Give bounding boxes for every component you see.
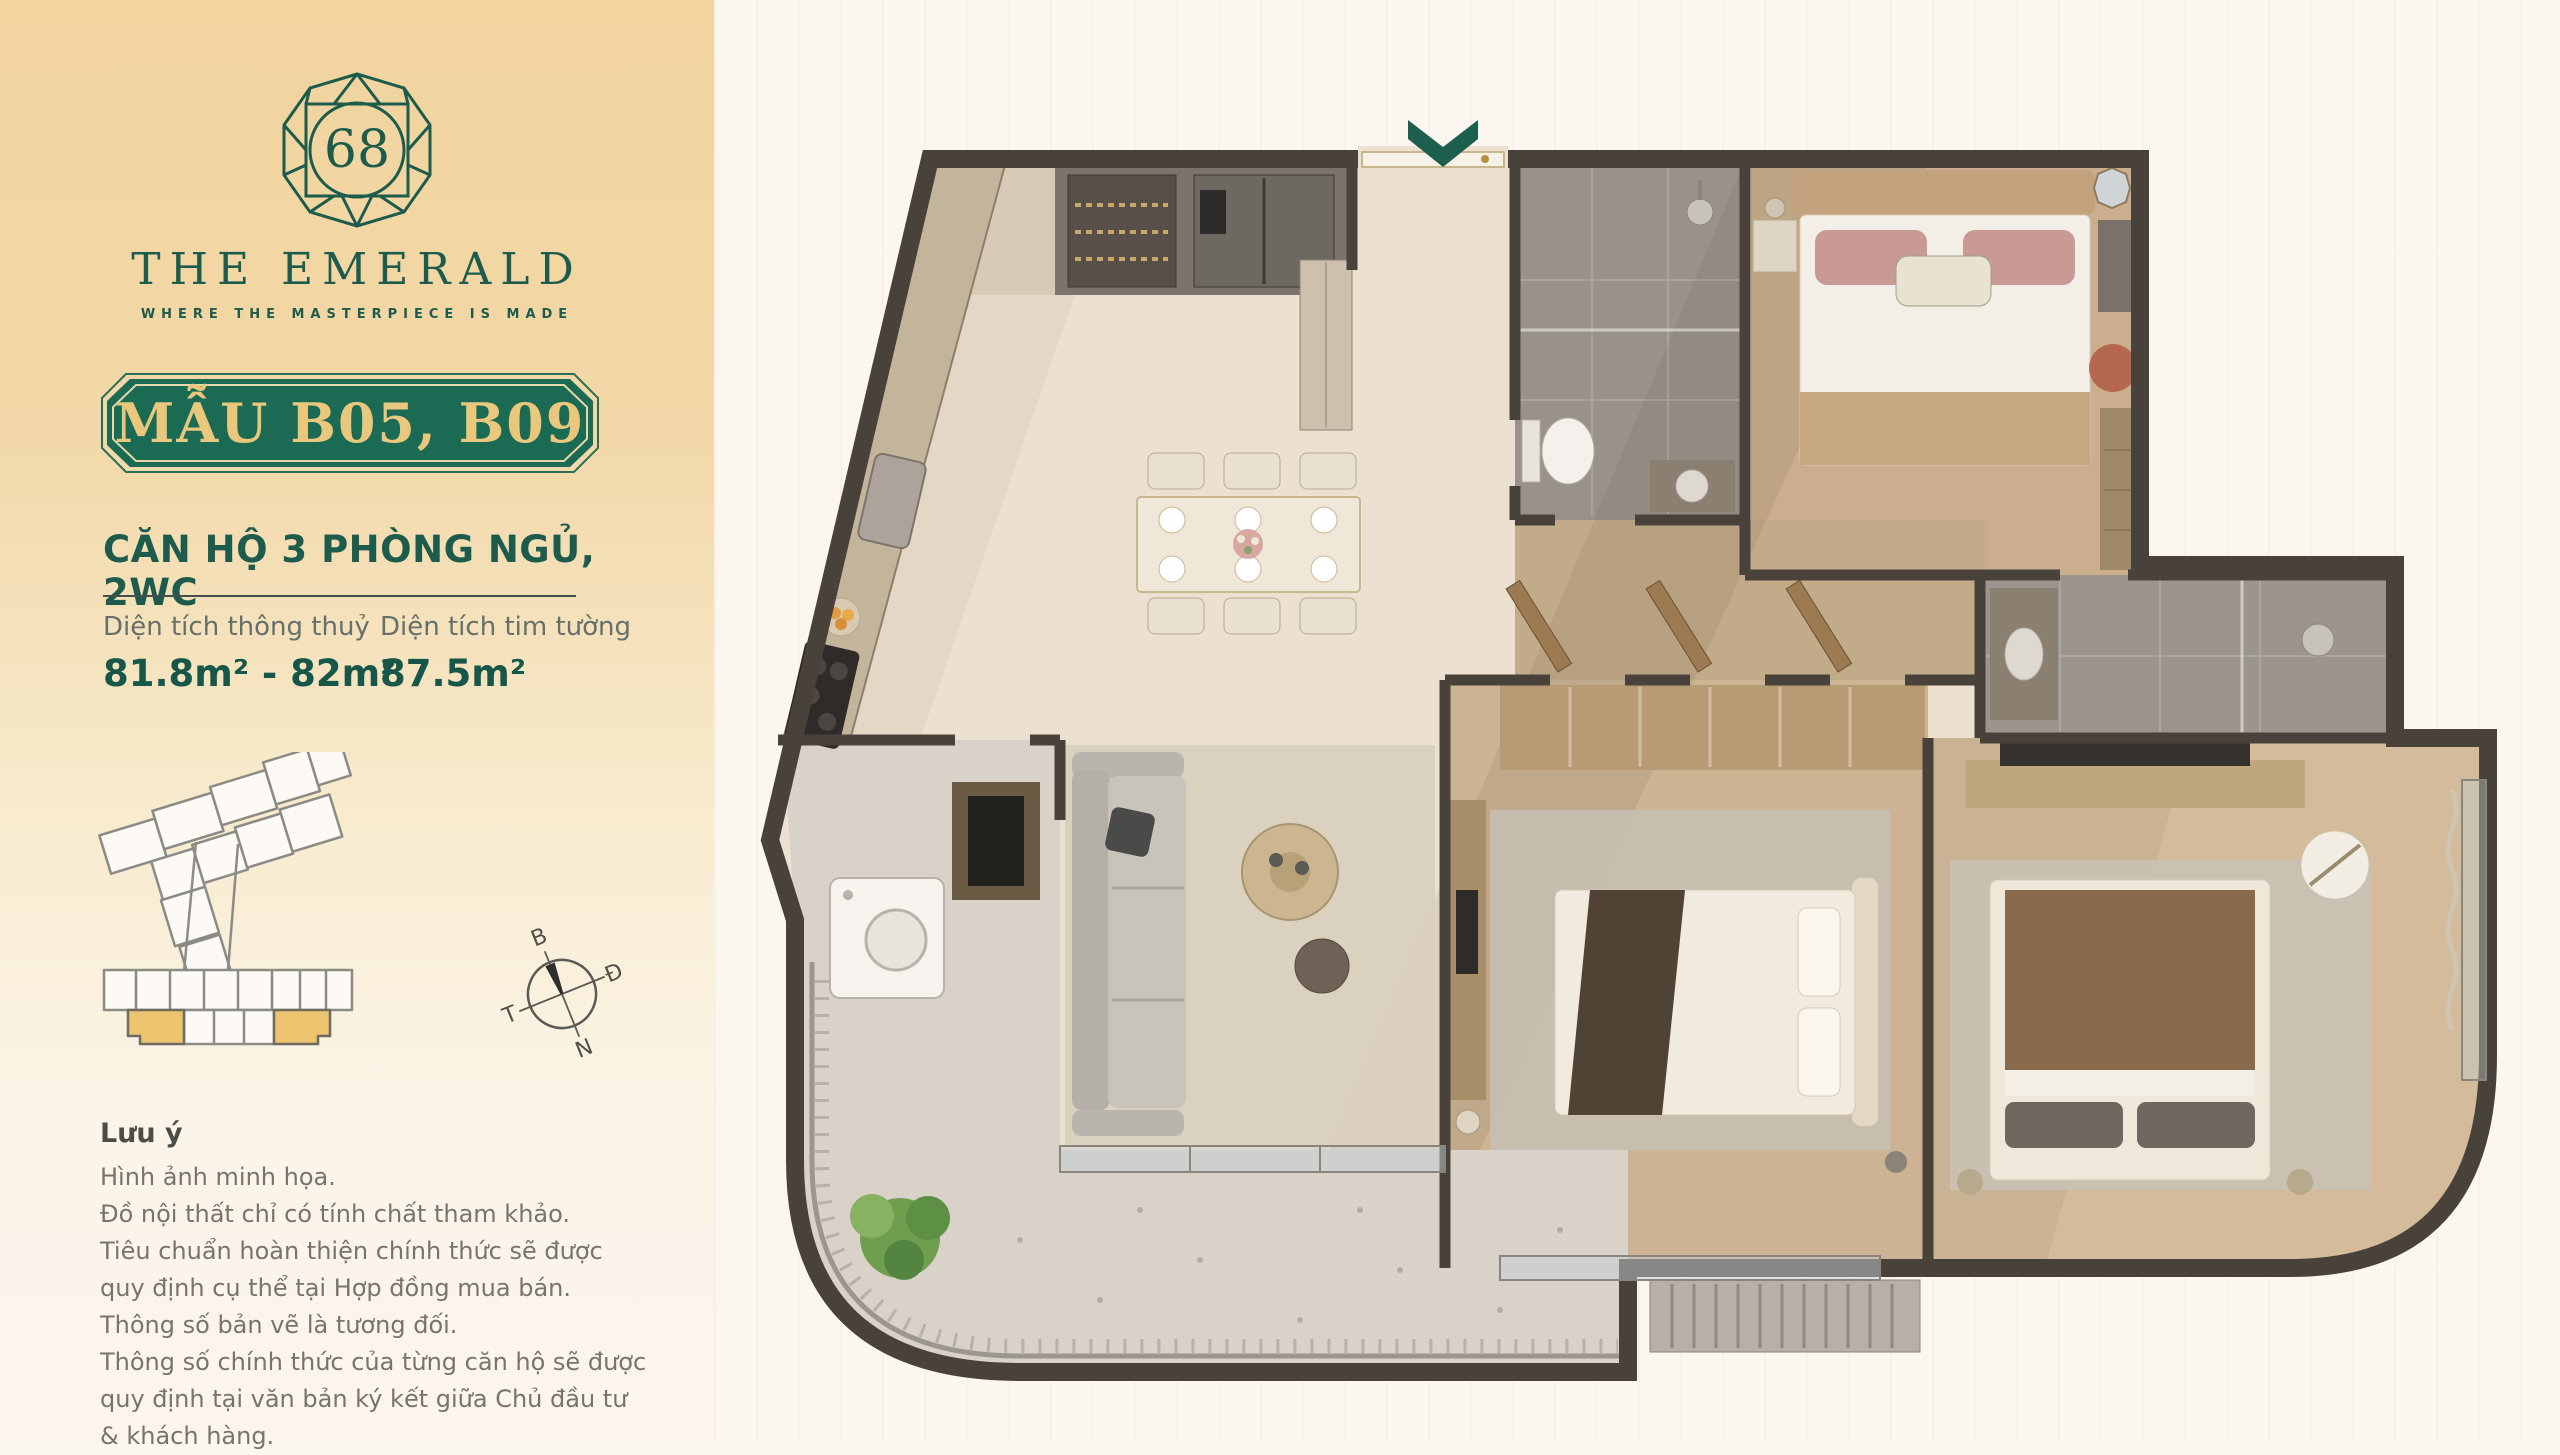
sheet-fold <box>2005 1070 2255 1096</box>
bedroom3-console <box>1965 760 2305 808</box>
table-lamp <box>1456 1110 1480 1134</box>
bath2-basin <box>2005 628 2043 680</box>
pillow <box>2137 1102 2255 1148</box>
page: { "brand": { "logo_number": "68", "name"… <box>0 0 2560 1440</box>
table-lamp <box>1765 198 1785 218</box>
svg-text:68: 68 <box>324 120 390 180</box>
floor-lamp <box>1885 1151 1907 1173</box>
rain-shower-head <box>1687 199 1713 225</box>
bath1-basin <box>1676 470 1708 502</box>
rain-shower-head <box>2302 624 2334 656</box>
bedroom2-tv <box>1456 890 1478 974</box>
vanity-desk <box>2098 220 2132 312</box>
side-table <box>2287 1169 2313 1195</box>
master-wardrobe <box>2100 408 2134 570</box>
sofa-back <box>1072 770 1110 1110</box>
door-handle <box>1481 155 1489 163</box>
fridge-screen <box>1200 190 1226 234</box>
dark-pillow <box>1104 806 1156 858</box>
bedroom2-wardrobe <box>1500 685 1925 770</box>
highlighted-unit-right <box>274 1010 330 1044</box>
master-headboard <box>1795 170 2095 215</box>
side-coffee-table <box>1295 939 1349 993</box>
toilet <box>1542 418 1594 484</box>
terracotta-pot <box>2089 344 2137 392</box>
flower-centerpiece <box>1233 529 1263 559</box>
bedroom2-headboard <box>1852 878 1878 1126</box>
side-table <box>1957 1169 1983 1195</box>
living-tv <box>968 796 1024 886</box>
floorplan-render <box>500 120 2520 1390</box>
ac-ledge <box>1650 1280 1920 1352</box>
toilet-tank <box>1522 420 1540 482</box>
net-area-label: Diện tích thông thuỷ <box>103 612 396 642</box>
pillow <box>1798 1008 1840 1096</box>
sofa-armrest <box>1072 1110 1184 1136</box>
brown-blanket <box>2005 890 2255 1070</box>
net-area-block: Diện tích thông thuỷ 81.8m² - 82m² <box>103 612 396 695</box>
net-area-value: 81.8m² - 82m² <box>103 652 396 695</box>
pillow <box>1798 908 1840 996</box>
nightstand <box>1753 220 1797 272</box>
pillow <box>2005 1102 2123 1148</box>
vanity-mirror <box>2094 168 2130 208</box>
washer-dial <box>843 890 853 900</box>
bedroom2-furniture <box>1450 685 1925 1173</box>
site-keyplan-icon <box>88 752 378 1052</box>
master-blanket <box>1800 392 2090 465</box>
bedroom3-tv <box>2000 742 2250 766</box>
diamond-68-icon: 68 <box>272 70 442 230</box>
washer-door <box>866 910 926 970</box>
floral-pillow <box>1896 256 1991 306</box>
highlighted-unit-left <box>128 1010 184 1044</box>
dining-set <box>1137 453 1360 634</box>
